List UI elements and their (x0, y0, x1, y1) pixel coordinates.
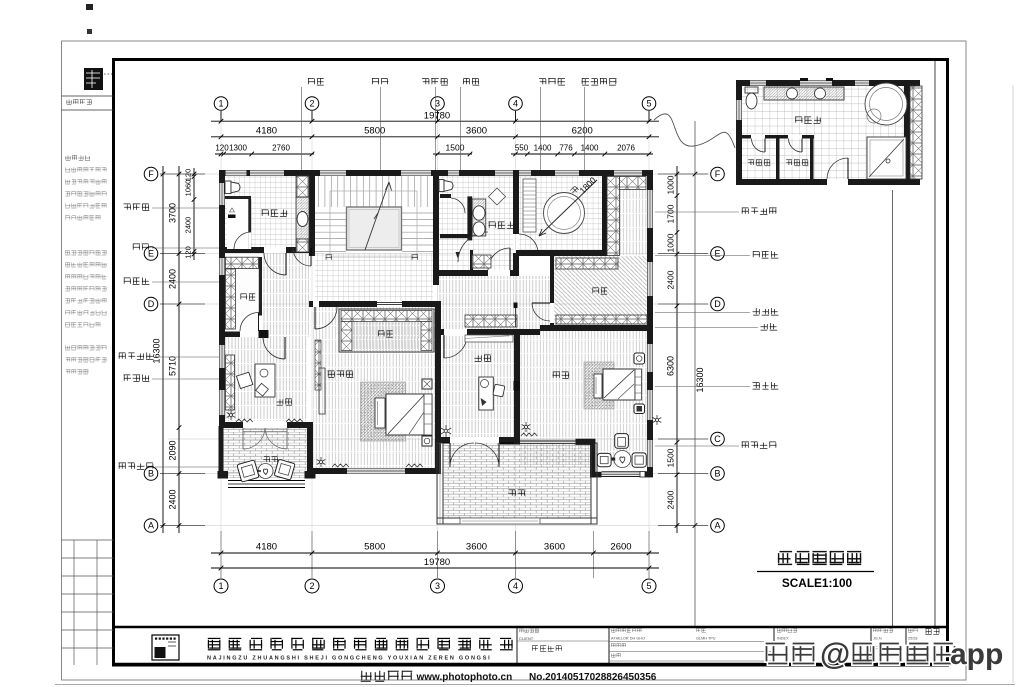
svg-text:1: 1 (218, 581, 223, 591)
svg-text:1400: 1400 (534, 144, 552, 153)
svg-text:F: F (715, 169, 721, 179)
svg-text:4180: 4180 (256, 126, 277, 137)
svg-text:2090: 2090 (168, 440, 178, 460)
svg-text:E: E (148, 249, 154, 259)
svg-text:120: 120 (184, 169, 193, 182)
svg-text:D: D (148, 299, 155, 309)
svg-text:5: 5 (646, 581, 651, 591)
svg-text:5: 5 (646, 99, 651, 109)
svg-text:www.photophoto.cn: www.photophoto.cn (416, 672, 513, 683)
svg-text:2760: 2760 (272, 144, 290, 153)
svg-text:1500: 1500 (666, 448, 676, 467)
svg-text:No.20140517028826450356: No.20140517028826450356 (529, 672, 657, 683)
svg-text:D: D (714, 299, 721, 309)
svg-text:ATHELOR DH GHO: ATHELOR DH GHO (611, 637, 645, 641)
svg-text:B: B (148, 469, 154, 479)
svg-text:GLMH TPU: GLMH TPU (696, 637, 716, 641)
svg-text:2400: 2400 (666, 270, 676, 289)
svg-text:1400: 1400 (581, 144, 599, 153)
svg-text:3600: 3600 (544, 542, 565, 553)
svg-text:INDEX: INDEX (777, 637, 789, 641)
svg-text:A: A (714, 521, 720, 531)
svg-text:1700: 1700 (666, 204, 676, 223)
svg-text:5800: 5800 (364, 126, 385, 137)
svg-text:19780: 19780 (424, 111, 450, 122)
svg-text:JG.N: JG.N (873, 637, 882, 641)
svg-text:25/28: 25/28 (908, 637, 918, 641)
svg-text:2: 2 (309, 581, 314, 591)
svg-text:3600: 3600 (466, 542, 487, 553)
svg-text:6200: 6200 (572, 126, 593, 137)
svg-text:2400: 2400 (168, 269, 178, 289)
svg-text:3700: 3700 (168, 203, 178, 223)
svg-text:2076: 2076 (617, 144, 635, 153)
svg-text:CLIENT: CLIENT (519, 636, 534, 641)
svg-text:@: @ (820, 636, 850, 671)
svg-text:19780: 19780 (424, 557, 450, 568)
svg-text:NAJINGZU ZHUANGSHI SHEJI GONGC: NAJINGZU ZHUANGSHI SHEJI GONGCHENG YOUXI… (207, 656, 491, 662)
svg-text:B: B (714, 469, 720, 479)
svg-text:1500: 1500 (446, 143, 465, 153)
svg-text:120: 120 (215, 144, 229, 153)
svg-text:6300: 6300 (666, 356, 676, 376)
svg-text:550: 550 (515, 144, 529, 153)
svg-text:4: 4 (513, 99, 518, 109)
svg-text:1: 1 (218, 99, 223, 109)
svg-text:2400: 2400 (168, 489, 178, 509)
svg-text:F: F (148, 169, 154, 179)
svg-text:1300: 1300 (229, 144, 247, 153)
svg-text:3600: 3600 (466, 126, 487, 137)
svg-text:3: 3 (435, 581, 440, 591)
svg-text:4180: 4180 (256, 542, 277, 553)
svg-text:16300: 16300 (695, 367, 705, 392)
svg-text:1000: 1000 (666, 233, 676, 252)
svg-text:2400: 2400 (666, 490, 676, 509)
svg-text:5800: 5800 (364, 542, 385, 553)
svg-text:A: A (148, 521, 154, 531)
svg-text:5710: 5710 (168, 356, 178, 376)
svg-text:2: 2 (309, 99, 314, 109)
svg-text:C: C (714, 434, 721, 444)
svg-text:4: 4 (513, 581, 518, 591)
svg-text:776: 776 (559, 144, 573, 153)
svg-text:2600: 2600 (610, 542, 631, 553)
svg-text:app: app (950, 638, 1003, 671)
svg-text:SCALE1:100: SCALE1:100 (782, 576, 853, 590)
svg-text:1000: 1000 (666, 175, 676, 194)
svg-text:2400: 2400 (184, 217, 193, 234)
svg-text:1060: 1060 (184, 180, 193, 197)
svg-text:E: E (714, 249, 720, 259)
